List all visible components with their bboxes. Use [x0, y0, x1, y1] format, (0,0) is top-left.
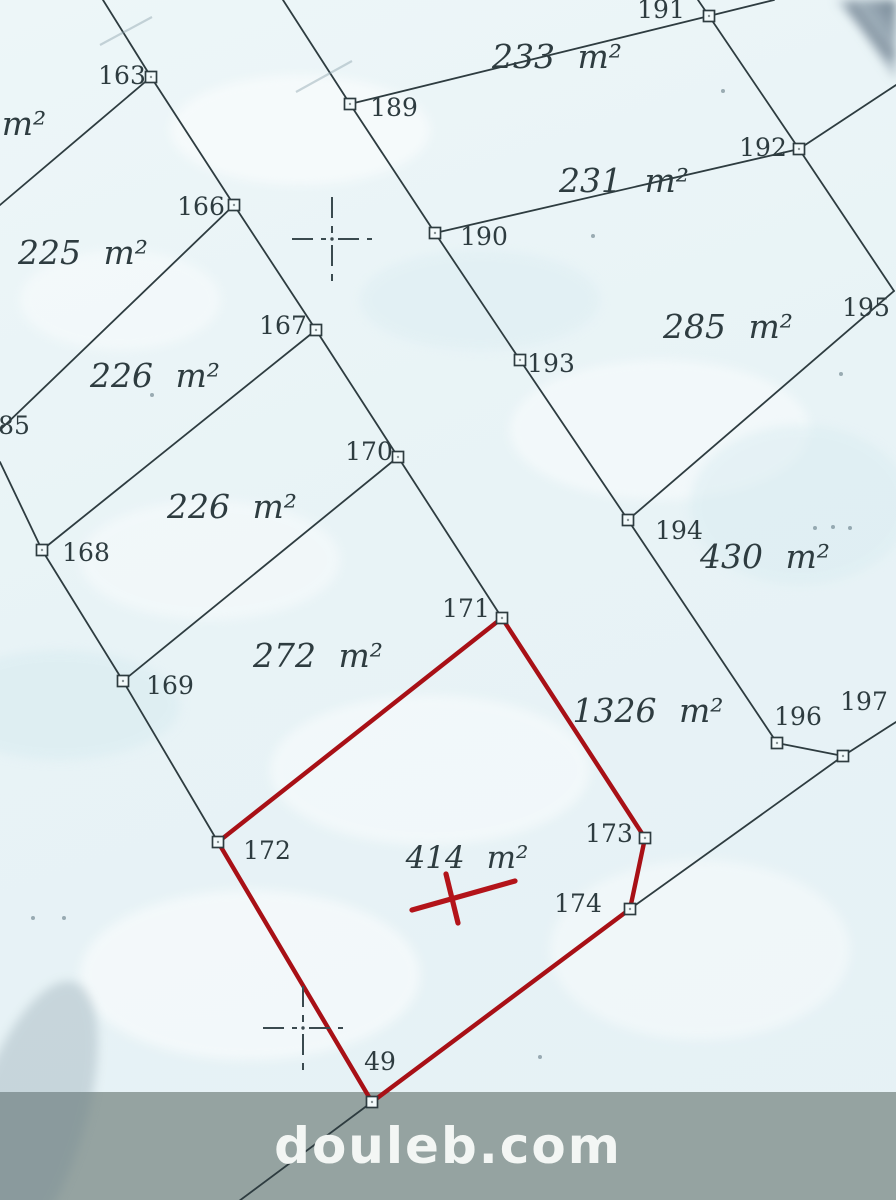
survey-point-label-170: 170 [345, 437, 393, 466]
survey-point-label-169: 169 [146, 671, 194, 700]
scanned-cadastral-plan: 1631661671701711721731744916816985189190… [0, 0, 896, 1200]
marker-dot [776, 742, 778, 744]
marker-dot [842, 755, 844, 757]
parcel-225-area-label: 225 m² [17, 233, 148, 272]
marker-dot [434, 232, 436, 234]
line-196-197 [777, 743, 843, 756]
line-197-edge [843, 722, 896, 756]
survey-point-label-191: 191 [637, 0, 685, 24]
cadastral-map: 1631661671701711721731744916816985189190… [0, 0, 896, 1200]
marker-dot [217, 841, 219, 843]
survey-cross-center [330, 237, 333, 240]
marker-dot [627, 519, 629, 521]
marker-dot [349, 103, 351, 105]
marker-dot [150, 76, 152, 78]
survey-point-label-168: 168 [62, 538, 110, 567]
highlight-cross-mark [412, 881, 515, 910]
survey-point-label-167: 167 [259, 311, 307, 340]
survey-point-label-189: 189 [370, 93, 418, 122]
survey-point-label-173: 173 [585, 819, 633, 848]
parcel-226-a-area-label: 226 m² [89, 356, 220, 395]
parcel-285-area-label: 285 m² [662, 307, 793, 346]
parcel-272-area-label: 272 m² [252, 636, 383, 675]
parcel-1326-area-label: 1326 m² [573, 691, 724, 730]
marker-dot [122, 680, 124, 682]
marker-dot [315, 329, 317, 331]
survey-point-label-166: 166 [177, 192, 225, 221]
marker-dot [519, 359, 521, 361]
marker-dot [629, 908, 631, 910]
survey-point-label-192: 192 [739, 133, 787, 162]
parcel-231-area-label: 231 m² [558, 161, 689, 200]
marker-dot [798, 148, 800, 150]
survey-point-label-196: 196 [774, 702, 822, 731]
survey-point-label-172: 172 [243, 836, 291, 865]
parcel-226-b-area-label: 226 m² [166, 487, 297, 526]
parcel-partial-topleft-area-label: m² [2, 104, 47, 143]
survey-point-label-163: 163 [98, 61, 146, 90]
marker-dot [708, 15, 710, 17]
marker-dot [41, 549, 43, 551]
line-192-edge [799, 85, 896, 149]
parcel-233-area-label: 233 m² [491, 37, 622, 76]
marker-dot [233, 204, 235, 206]
parcel-430-area-label: 430 m² [699, 537, 830, 576]
survey-point-label-171: 171 [442, 594, 490, 623]
survey-point-label-194: 194 [655, 516, 703, 545]
survey-point-label-49: 49 [364, 1047, 396, 1076]
marker-dot [644, 837, 646, 839]
marker-dot [397, 456, 399, 458]
watermark-text: douleb.com [274, 1117, 622, 1175]
marker-dot [501, 617, 503, 619]
survey-cross-center [301, 1026, 304, 1029]
survey-point-label-195: 195 [842, 293, 890, 322]
survey-point-label-190: 190 [460, 222, 508, 251]
survey-point-label-85: 85 [0, 411, 30, 440]
parcel-414-area-label: 414 m² [405, 840, 529, 876]
survey-point-label-174: 174 [554, 889, 602, 918]
marker-dot [371, 1101, 373, 1103]
survey-point-label-193: 193 [527, 349, 575, 378]
survey-point-label-197: 197 [840, 687, 888, 716]
